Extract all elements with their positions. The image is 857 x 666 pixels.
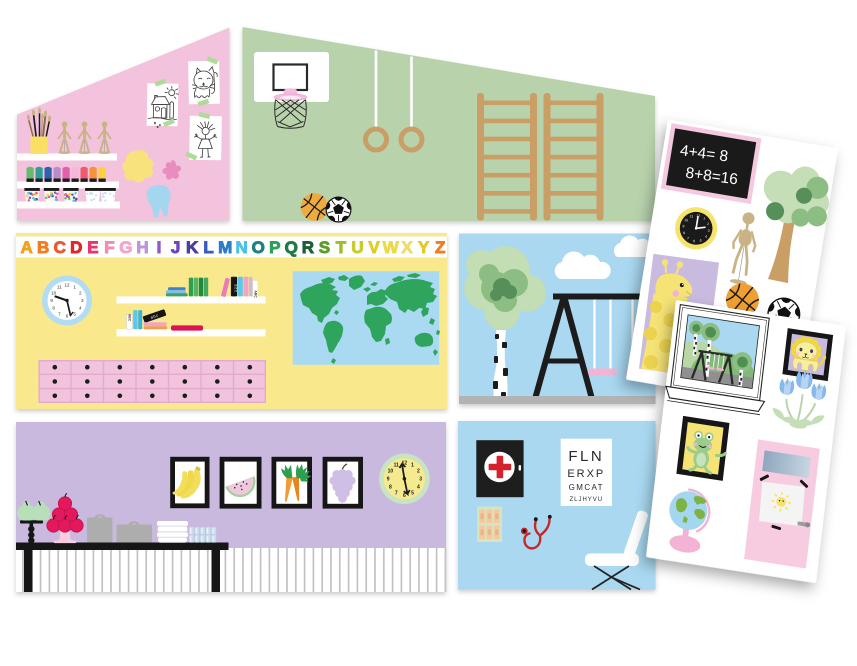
svg-text:5: 5 [411, 491, 414, 497]
svg-text:C: C [54, 238, 66, 257]
svg-text:2: 2 [417, 469, 420, 475]
svg-text:N: N [236, 238, 248, 257]
svg-text:GMCAT: GMCAT [569, 483, 604, 492]
svg-text:9: 9 [387, 477, 390, 483]
svg-text:ZLJHYVU: ZLJHYVU [569, 497, 603, 503]
svg-text:V: V [368, 238, 380, 257]
svg-text:T: T [336, 238, 347, 257]
svg-text:FLN: FLN [568, 448, 604, 465]
svg-text:8: 8 [389, 485, 392, 491]
svg-text:1: 1 [73, 285, 76, 290]
svg-text:F: F [104, 238, 114, 257]
svg-text:Y: Y [418, 238, 430, 257]
svg-text:Z: Z [435, 238, 445, 257]
svg-text:W: W [383, 238, 400, 257]
svg-text:3: 3 [419, 477, 422, 483]
svg-text:3: 3 [81, 298, 84, 303]
svg-text:J: J [171, 238, 180, 257]
svg-text:7: 7 [395, 491, 398, 497]
svg-text:I: I [157, 238, 162, 257]
svg-text:1: 1 [411, 463, 414, 469]
svg-text:D: D [70, 238, 82, 257]
svg-text:11: 11 [394, 463, 400, 469]
svg-text:4: 4 [417, 485, 420, 491]
svg-text:8: 8 [52, 306, 55, 311]
svg-text:X: X [401, 238, 413, 257]
svg-text:A: A [21, 238, 33, 257]
svg-text:Q: Q [285, 238, 298, 257]
svg-text:6: 6 [66, 313, 69, 318]
svg-text:O: O [252, 238, 265, 257]
svg-text:B: B [37, 238, 49, 257]
svg-text:ABC: ABC [128, 314, 132, 322]
svg-text:123: 123 [233, 284, 238, 292]
svg-text:11: 11 [689, 214, 693, 219]
svg-text:12: 12 [64, 283, 70, 288]
svg-text:6: 6 [403, 493, 406, 499]
svg-text:4: 4 [79, 306, 82, 311]
svg-text:10: 10 [388, 469, 394, 475]
svg-text:7: 7 [58, 311, 61, 316]
svg-text:ERXP: ERXP [567, 468, 605, 480]
svg-text:K: K [186, 238, 199, 257]
svg-text:U: U [351, 238, 363, 257]
svg-text:R: R [302, 238, 314, 257]
svg-text:10: 10 [684, 218, 688, 223]
svg-text:H: H [136, 238, 148, 257]
svg-text:E: E [87, 238, 98, 257]
svg-text:2: 2 [79, 290, 82, 295]
svg-text:L: L [203, 238, 213, 257]
svg-text:9: 9 [50, 298, 53, 303]
svg-text:M: M [218, 238, 232, 257]
svg-text:P: P [269, 238, 280, 257]
svg-text:11: 11 [57, 285, 62, 290]
svg-text:S: S [319, 238, 330, 257]
svg-text:ABC: ABC [253, 290, 257, 298]
svg-text:5: 5 [73, 311, 76, 316]
svg-text:G: G [119, 238, 132, 257]
svg-text:10: 10 [51, 290, 57, 295]
